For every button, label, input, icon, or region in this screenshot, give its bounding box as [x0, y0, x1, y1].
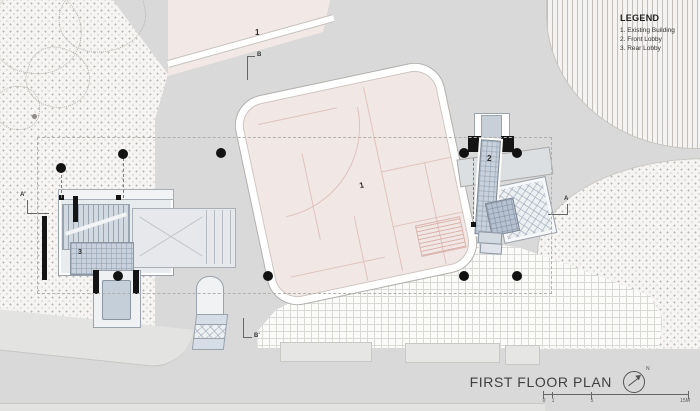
scale-tick-15m: 15M: [680, 398, 690, 404]
section-marker-b: B: [257, 52, 261, 58]
tree-dot: [263, 271, 273, 281]
tree-dot: [216, 148, 226, 158]
road-island: [280, 342, 372, 362]
tree-dot: [459, 148, 469, 158]
scale-tick-1: 1: [552, 398, 555, 404]
section-marker-a-prime: A': [20, 192, 26, 198]
section-line-b-prime: [243, 318, 244, 338]
tree-dot: [56, 163, 66, 173]
road-island: [505, 345, 540, 365]
column-grid-line: [123, 158, 125, 198]
plan-title: FIRST FLOOR PLAN: [440, 374, 612, 390]
section-line-b-prime: [243, 337, 252, 338]
column-marker: [471, 222, 476, 227]
tree-icon: [0, 86, 40, 130]
ramp-hatch: [193, 324, 227, 339]
section-marker-b-prime: B': [254, 333, 260, 339]
existing-building-top: 1: [166, 0, 334, 80]
section-line-b: [247, 56, 255, 57]
existing-building-top-label: 1: [255, 29, 259, 37]
column-grid-line: [473, 158, 475, 224]
legend-title: LEGEND: [620, 13, 698, 23]
north-label: N: [646, 366, 650, 372]
legend-item: 3. Rear Lobby: [620, 44, 698, 53]
road-island: [405, 343, 500, 363]
column-grid-line: [61, 170, 63, 198]
tree-dot: [512, 271, 522, 281]
tree-dot: [113, 271, 123, 281]
scale-tick-5: 5: [591, 398, 594, 404]
legend-item: 2. Front Lobby: [620, 35, 698, 44]
section-line-b: [247, 56, 248, 80]
section-line-a-prime: [27, 200, 28, 214]
tree-dot: [512, 148, 522, 158]
tree-dot: [118, 149, 128, 159]
floor-plan-canvas: 1 B B' 1 3: [0, 0, 700, 411]
section-marker-a: A: [564, 196, 568, 202]
tree-dot: [459, 271, 469, 281]
legend-item: 1. Existing Building: [620, 26, 698, 35]
section-line-a: [567, 204, 568, 215]
scale-bar: 0 1 5 15M: [543, 390, 691, 406]
tree-trunk-icon: [32, 114, 37, 119]
road-edge-strip: [0, 403, 545, 411]
legend-panel: LEGEND 1. Existing Building 2. Front Lob…: [620, 13, 698, 53]
scale-tick-0: 0: [543, 398, 546, 404]
